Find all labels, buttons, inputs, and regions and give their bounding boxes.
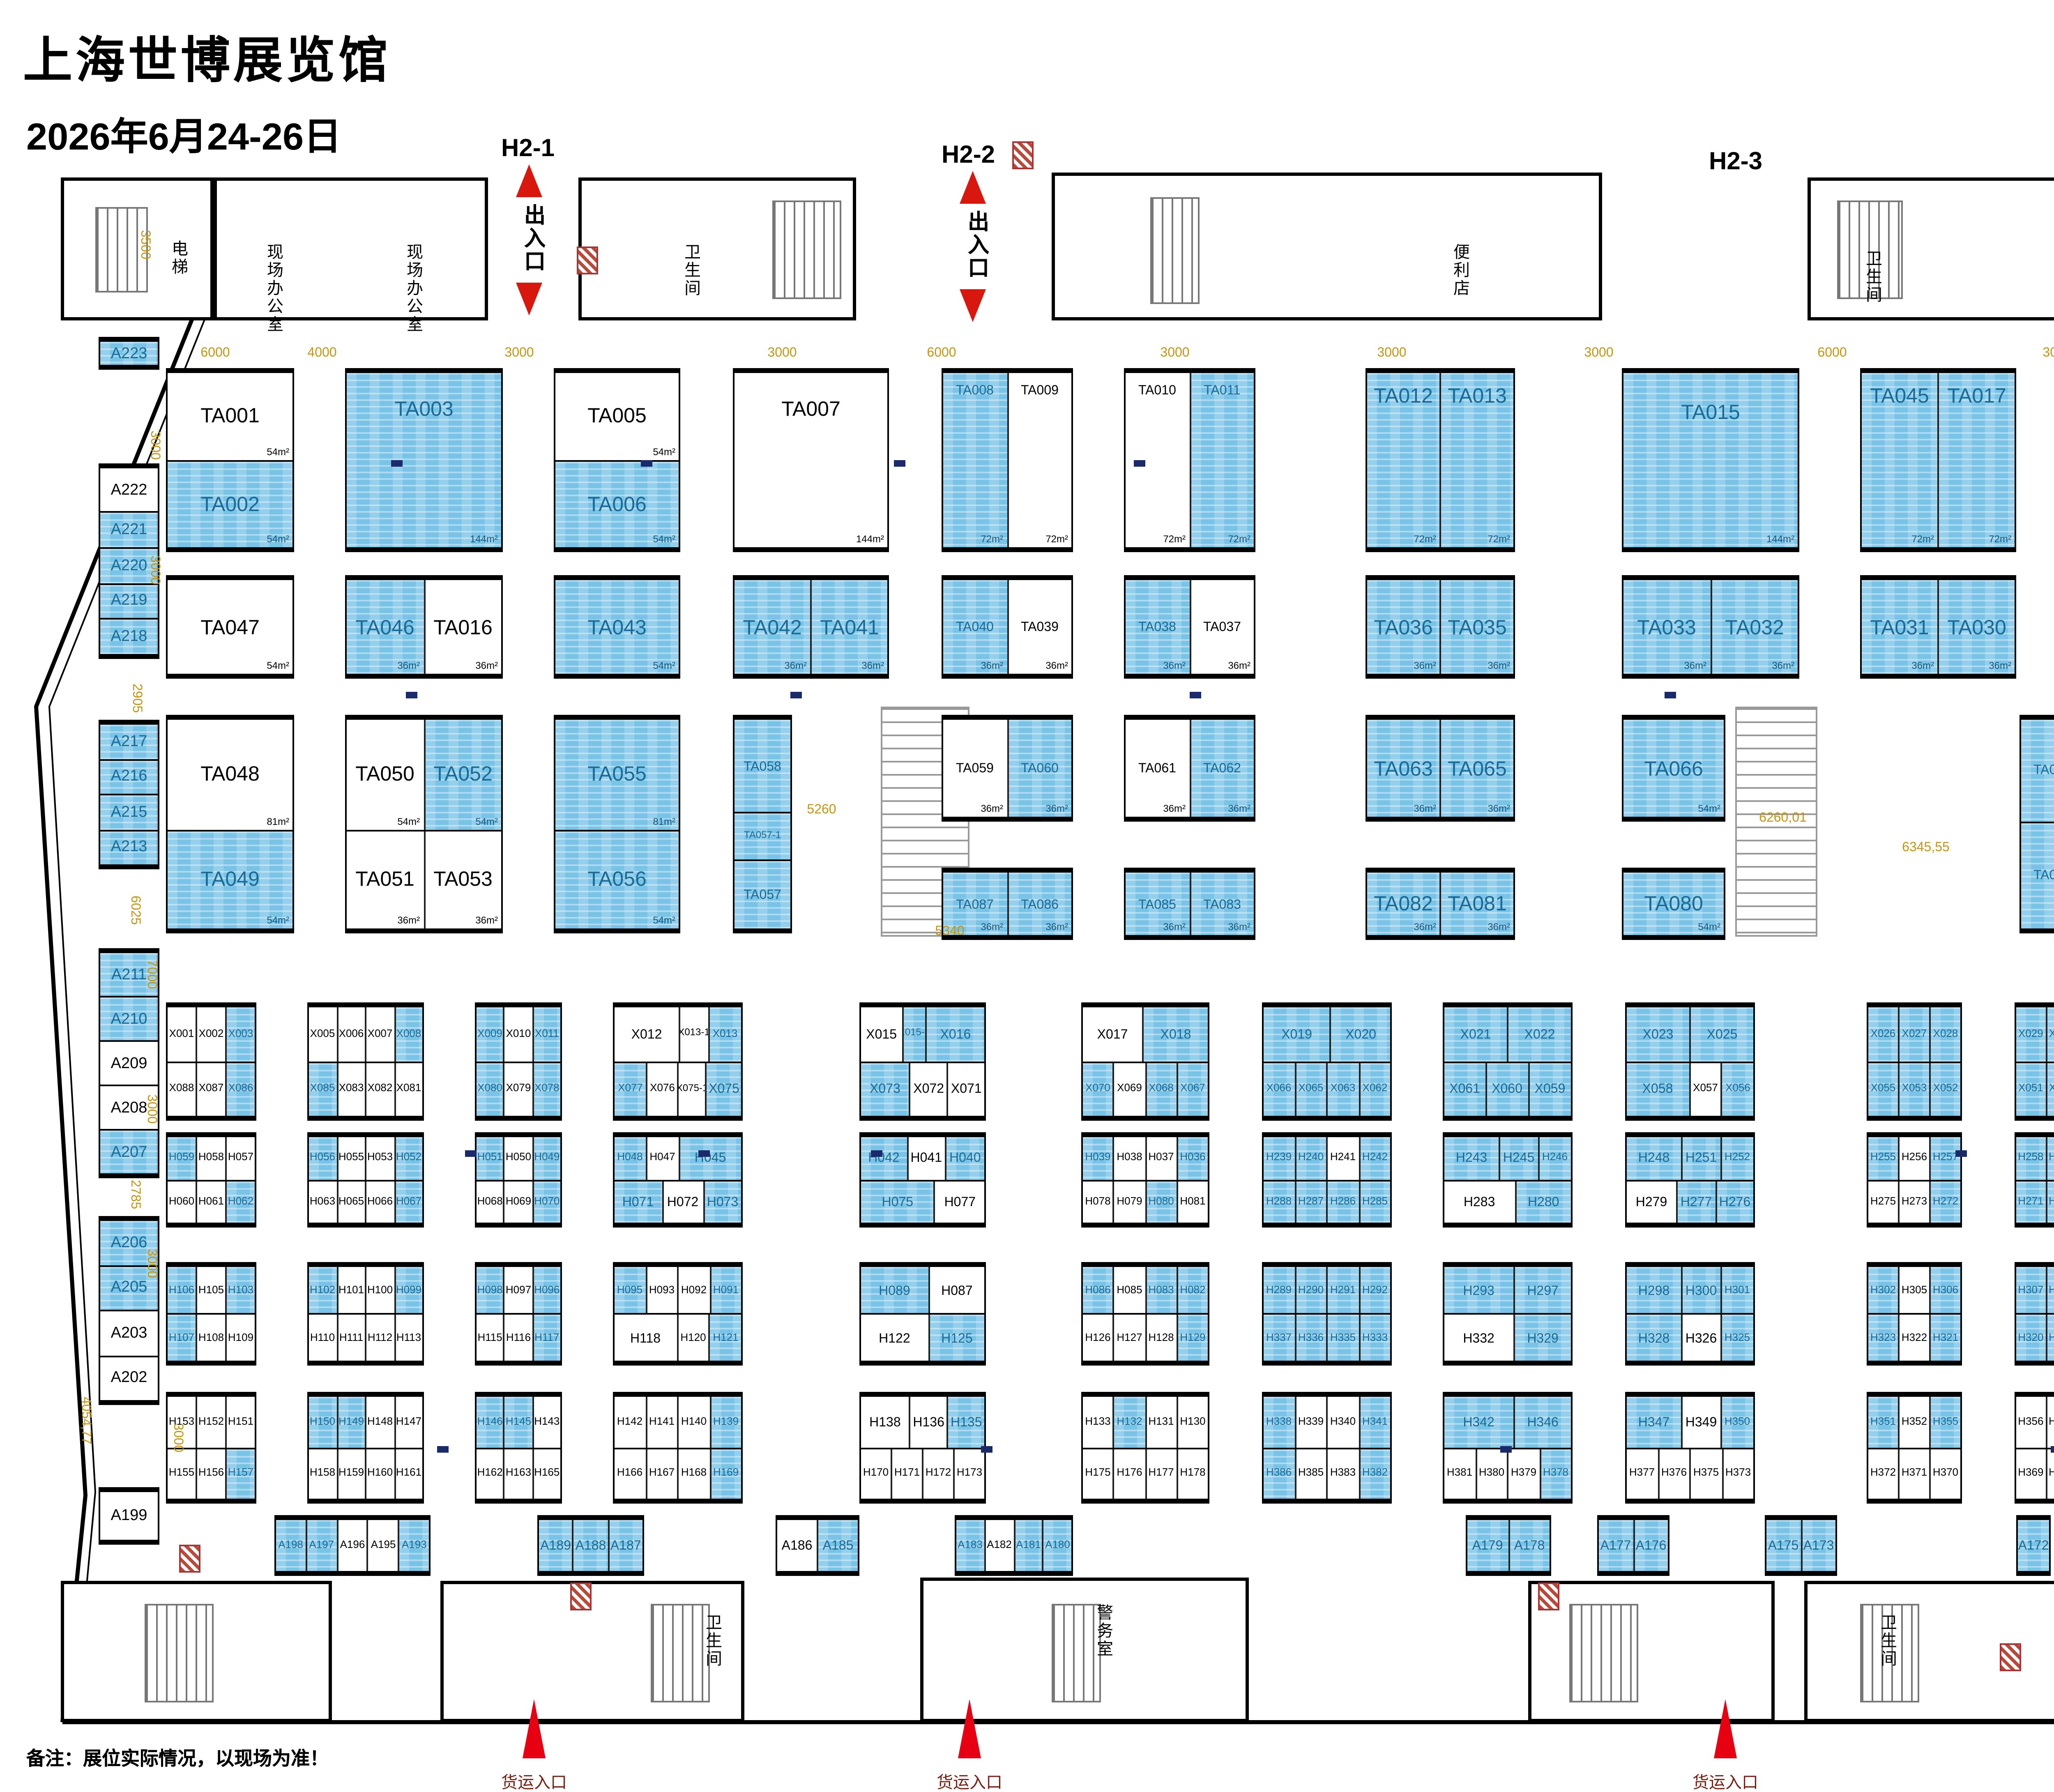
booth-TA048[interactable]: TA04881m² [168, 720, 292, 829]
booth-H166[interactable]: H166 [615, 1449, 647, 1499]
booth-X078[interactable]: X078 [534, 1062, 560, 1116]
booth-H298[interactable]: H298 [1627, 1267, 1683, 1313]
booth-H106[interactable]: H106 [168, 1267, 197, 1313]
booth-H369[interactable]: H369 [2016, 1449, 2047, 1499]
booth-X027[interactable]: X027 [1900, 1007, 1931, 1061]
booth-H341[interactable]: H341 [1360, 1397, 1390, 1447]
booth-H107[interactable]: H107 [168, 1315, 197, 1361]
booth-TA013[interactable]: TA01372m² [1441, 373, 1513, 547]
booth-H116[interactable]: H116 [505, 1315, 533, 1361]
booth-H065[interactable]: H065 [338, 1181, 366, 1223]
booth-A216[interactable]: A216 [100, 760, 158, 794]
booth-A210[interactable]: A210 [100, 997, 158, 1040]
booth-H150[interactable]: H150 [309, 1397, 338, 1447]
booth-H255[interactable]: H255 [1868, 1137, 1900, 1179]
booth-H103[interactable]: H103 [227, 1267, 255, 1313]
booth-H059[interactable]: H059 [168, 1137, 197, 1179]
booth-TA001[interactable]: TA00154m² [168, 373, 292, 459]
booth-H071[interactable]: H071 [615, 1181, 663, 1223]
booth-TA062[interactable]: TA06236m² [1190, 720, 1254, 817]
booth-X077[interactable]: X077 [615, 1062, 648, 1116]
booth-H332[interactable]: H332 [1444, 1315, 1515, 1361]
booth-A175[interactable]: A175 [1766, 1520, 1802, 1571]
booth-TA086[interactable]: TA08636m² [1008, 873, 1071, 935]
booth-TA056[interactable]: TA05654m² [555, 831, 679, 928]
booth-H279[interactable]: H279 [1627, 1181, 1678, 1223]
booth-X067[interactable]: X067 [1178, 1062, 1208, 1116]
booth-X057[interactable]: X057 [1690, 1062, 1722, 1116]
booth-TA015[interactable]: TA015144m² [1623, 373, 1798, 547]
booth-X020[interactable]: X020 [1331, 1007, 1390, 1061]
booth-H055[interactable]: H055 [338, 1137, 366, 1179]
booth-H246[interactable]: H246 [1539, 1137, 1571, 1179]
booth-H155[interactable]: H155 [168, 1449, 197, 1499]
booth-X081[interactable]: X081 [395, 1062, 422, 1116]
booth-H135[interactable]: H135 [948, 1397, 984, 1447]
booth-H160[interactable]: H160 [366, 1449, 395, 1499]
booth-X053[interactable]: X053 [1900, 1062, 1931, 1116]
booth-TA057-1[interactable]: TA057-1 [735, 814, 790, 859]
booth-H142[interactable]: H142 [615, 1397, 647, 1447]
booth-X082[interactable]: X082 [366, 1062, 395, 1116]
booth-H148[interactable]: H148 [366, 1397, 395, 1447]
booth-H307[interactable]: H307 [2016, 1267, 2047, 1313]
booth-TA011[interactable]: TA01172m² [1190, 373, 1254, 547]
booth-H239[interactable]: H239 [1264, 1137, 1296, 1179]
booth-A217[interactable]: A217 [100, 725, 158, 758]
booth-H241[interactable]: H241 [1328, 1137, 1360, 1179]
booth-H086[interactable]: H086 [1083, 1267, 1115, 1313]
booth-A222[interactable]: A222 [100, 468, 158, 511]
booth-X007[interactable]: X007 [366, 1007, 395, 1061]
booth-H378[interactable]: H378 [1540, 1449, 1571, 1499]
booth-A198[interactable]: A198 [276, 1520, 307, 1571]
booth-TA059[interactable]: TA05936m² [943, 720, 1008, 817]
booth-H041[interactable]: H041 [908, 1137, 946, 1179]
booth-H101[interactable]: H101 [338, 1267, 366, 1313]
booth-A196[interactable]: A196 [338, 1520, 368, 1571]
booth-H130[interactable]: H130 [1178, 1397, 1208, 1447]
booth-A215[interactable]: A215 [100, 795, 158, 829]
booth-H256[interactable]: H256 [1900, 1137, 1931, 1179]
booth-H305[interactable]: H305 [1900, 1267, 1931, 1313]
booth-H136[interactable]: H136 [911, 1397, 949, 1447]
booth-H125[interactable]: H125 [930, 1315, 984, 1361]
booth-TA045[interactable]: TA04572m² [1862, 373, 1939, 547]
booth-H301[interactable]: H301 [1721, 1267, 1753, 1313]
booth-X076[interactable]: X076 [648, 1062, 679, 1116]
booth-A177[interactable]: A177 [1599, 1520, 1634, 1571]
booth-H133[interactable]: H133 [1083, 1397, 1115, 1447]
booth-TA033[interactable]: TA03336m² [1623, 580, 1711, 674]
booth-TA017[interactable]: TA01772m² [1939, 373, 2015, 547]
booth-H350[interactable]: H350 [1721, 1397, 1753, 1447]
booth-A223[interactable]: A223 [100, 342, 158, 365]
booth-X015-1[interactable]: X015-1 [903, 1007, 927, 1061]
booth-X061[interactable]: X061 [1444, 1062, 1487, 1116]
booth-H121[interactable]: H121 [710, 1315, 741, 1361]
booth-H320[interactable]: H320 [2016, 1315, 2047, 1361]
booth-H132[interactable]: H132 [1115, 1397, 1146, 1447]
booth-H159[interactable]: H159 [338, 1449, 366, 1499]
booth-X012[interactable]: X012 [615, 1007, 680, 1061]
booth-H049[interactable]: H049 [534, 1137, 560, 1179]
booth-X011[interactable]: X011 [534, 1007, 560, 1061]
booth-TA003[interactable]: TA003144m² [347, 373, 501, 547]
booth-X017[interactable]: X017 [1083, 1007, 1144, 1061]
booth-H293[interactable]: H293 [1444, 1267, 1515, 1313]
booth-TA085[interactable]: TA08536m² [1126, 873, 1190, 935]
booth-A188[interactable]: A188 [574, 1520, 609, 1571]
booth-H151[interactable]: H151 [227, 1397, 255, 1447]
booth-H342[interactable]: H342 [1444, 1397, 1515, 1447]
booth-H037[interactable]: H037 [1146, 1137, 1178, 1179]
booth-H108[interactable]: H108 [197, 1315, 227, 1361]
booth-A176[interactable]: A176 [1634, 1520, 1668, 1571]
booth-TA035[interactable]: TA03536m² [1441, 580, 1513, 674]
booth-TA031[interactable]: TA03136m² [1862, 580, 1939, 674]
booth-TA082[interactable]: TA08236m² [1367, 873, 1441, 935]
booth-H173[interactable]: H173 [955, 1449, 984, 1499]
booth-TA049[interactable]: TA04954m² [168, 831, 292, 928]
booth-H163[interactable]: H163 [505, 1449, 533, 1499]
booth-H061[interactable]: H061 [197, 1181, 227, 1223]
booth-H300[interactable]: H300 [1683, 1267, 1721, 1313]
booth-X069[interactable]: X069 [1115, 1062, 1146, 1116]
booth-X013[interactable]: X013 [709, 1007, 741, 1061]
booth-H372[interactable]: H372 [1868, 1449, 1900, 1499]
booth-H288[interactable]: H288 [1264, 1181, 1296, 1223]
booth-H099[interactable]: H099 [395, 1267, 422, 1313]
booth-H297[interactable]: H297 [1515, 1267, 1571, 1313]
booth-TA006[interactable]: TA00654m² [555, 461, 679, 547]
booth-A187[interactable]: A187 [609, 1520, 642, 1571]
booth-H077[interactable]: H077 [936, 1181, 984, 1223]
booth-H177[interactable]: H177 [1146, 1449, 1178, 1499]
booth-H356[interactable]: H356 [2016, 1397, 2047, 1447]
booth-H292[interactable]: H292 [1360, 1267, 1390, 1313]
booth-H383[interactable]: H383 [1328, 1449, 1360, 1499]
booth-A179[interactable]: A179 [1467, 1520, 1509, 1571]
booth-X005[interactable]: X005 [309, 1007, 338, 1061]
booth-H149[interactable]: H149 [338, 1397, 366, 1447]
booth-X050[interactable]: X050 [2047, 1062, 2054, 1116]
booth-TA040[interactable]: TA04036m² [943, 580, 1008, 674]
booth-A173[interactable]: A173 [1802, 1520, 1835, 1571]
booth-H381[interactable]: H381 [1444, 1449, 1476, 1499]
booth-H368[interactable]: H368 [2047, 1449, 2054, 1499]
booth-H351[interactable]: H351 [1868, 1397, 1900, 1447]
booth-H171[interactable]: H171 [892, 1449, 923, 1499]
booth-H162[interactable]: H162 [477, 1449, 505, 1499]
booth-A189[interactable]: A189 [539, 1520, 574, 1571]
booth-TA047[interactable]: TA04754m² [168, 580, 292, 674]
booth-H340[interactable]: H340 [1328, 1397, 1360, 1447]
booth-TA083[interactable]: TA08336m² [1190, 873, 1254, 935]
booth-TA063[interactable]: TA06336m² [1367, 720, 1441, 817]
booth-H128[interactable]: H128 [1146, 1315, 1178, 1361]
booth-H157[interactable]: H157 [227, 1449, 255, 1499]
booth-TA037[interactable]: TA03736m² [1190, 580, 1254, 674]
booth-H326[interactable]: H326 [1683, 1315, 1721, 1361]
booth-H271[interactable]: H271 [2016, 1181, 2047, 1223]
booth-A213[interactable]: A213 [100, 831, 158, 864]
booth-TA002[interactable]: TA00254m² [168, 461, 292, 547]
booth-H175[interactable]: H175 [1083, 1449, 1115, 1499]
booth-X013-1[interactable]: X013-1 [680, 1007, 709, 1061]
booth-TA058[interactable]: TA058 [735, 720, 790, 812]
booth-X072[interactable]: X072 [911, 1062, 949, 1116]
booth-X058[interactable]: X058 [1627, 1062, 1690, 1116]
booth-H040[interactable]: H040 [946, 1137, 984, 1179]
booth-H089[interactable]: H089 [861, 1267, 930, 1313]
booth-H339[interactable]: H339 [1296, 1397, 1328, 1447]
booth-H068[interactable]: H068 [477, 1181, 505, 1223]
booth-H319[interactable]: H319 [2047, 1315, 2054, 1361]
booth-H036[interactable]: H036 [1178, 1137, 1208, 1179]
booth-H110[interactable]: H110 [309, 1315, 338, 1361]
booth-H337[interactable]: H337 [1264, 1315, 1296, 1361]
booth-H333[interactable]: H333 [1360, 1315, 1390, 1361]
booth-X023[interactable]: X023 [1627, 1007, 1691, 1061]
booth-H308[interactable]: H308 [2047, 1267, 2054, 1313]
booth-H070[interactable]: H070 [534, 1181, 560, 1223]
booth-H087[interactable]: H087 [930, 1267, 984, 1313]
booth-H178[interactable]: H178 [1178, 1449, 1208, 1499]
booth-H245[interactable]: H245 [1500, 1137, 1539, 1179]
booth-TA041[interactable]: TA04136m² [812, 580, 887, 674]
booth-H158[interactable]: H158 [309, 1449, 338, 1499]
booth-H097[interactable]: H097 [505, 1267, 533, 1313]
booth-X028[interactable]: X028 [1931, 1007, 1960, 1061]
booth-A199[interactable]: A199 [100, 1492, 158, 1540]
booth-A185[interactable]: A185 [818, 1520, 858, 1571]
booth-A183[interactable]: A183 [956, 1520, 986, 1571]
booth-H063[interactable]: H063 [309, 1181, 338, 1223]
booth-H141[interactable]: H141 [647, 1397, 679, 1447]
booth-TA068[interactable]: TA06836m² [2021, 720, 2054, 821]
booth-A209[interactable]: A209 [100, 1042, 158, 1085]
booth-H145[interactable]: H145 [505, 1397, 533, 1447]
booth-X079[interactable]: X079 [505, 1062, 533, 1116]
booth-A195[interactable]: A195 [369, 1520, 400, 1571]
booth-H138[interactable]: H138 [861, 1397, 911, 1447]
booth-H129[interactable]: H129 [1178, 1315, 1208, 1361]
booth-TA055[interactable]: TA05581m² [555, 720, 679, 829]
booth-H338[interactable]: H338 [1264, 1397, 1296, 1447]
booth-H285[interactable]: H285 [1360, 1181, 1390, 1223]
booth-TA046[interactable]: TA04636m² [347, 580, 425, 674]
booth-A219[interactable]: A219 [100, 584, 158, 618]
booth-H042[interactable]: H042 [861, 1137, 908, 1179]
booth-H075[interactable]: H075 [861, 1181, 936, 1223]
booth-X088[interactable]: X088 [168, 1062, 197, 1116]
booth-X083[interactable]: X083 [338, 1062, 366, 1116]
booth-H371[interactable]: H371 [1900, 1449, 1931, 1499]
booth-H079[interactable]: H079 [1115, 1181, 1146, 1223]
booth-H290[interactable]: H290 [1296, 1267, 1328, 1313]
booth-X071[interactable]: X071 [948, 1062, 984, 1116]
booth-TA009[interactable]: TA00972m² [1008, 373, 1071, 547]
booth-H156[interactable]: H156 [197, 1449, 227, 1499]
booth-H252[interactable]: H252 [1721, 1137, 1753, 1179]
booth-H078[interactable]: H078 [1083, 1181, 1115, 1223]
booth-H287[interactable]: H287 [1296, 1181, 1328, 1223]
booth-H131[interactable]: H131 [1146, 1397, 1178, 1447]
booth-H066[interactable]: H066 [366, 1181, 395, 1223]
booth-X006[interactable]: X006 [338, 1007, 366, 1061]
booth-H147[interactable]: H147 [395, 1397, 422, 1447]
booth-X021[interactable]: X021 [1444, 1007, 1508, 1061]
booth-H170[interactable]: H170 [861, 1449, 892, 1499]
booth-A197[interactable]: A197 [307, 1520, 338, 1571]
booth-TA081[interactable]: TA08136m² [1441, 873, 1513, 935]
booth-X055[interactable]: X055 [1868, 1062, 1900, 1116]
booth-H335[interactable]: H335 [1328, 1315, 1360, 1361]
booth-H127[interactable]: H127 [1115, 1315, 1146, 1361]
booth-H347[interactable]: H347 [1627, 1397, 1683, 1447]
booth-H039[interactable]: H039 [1083, 1137, 1115, 1179]
booth-X086[interactable]: X086 [227, 1062, 255, 1116]
booth-H349[interactable]: H349 [1683, 1397, 1721, 1447]
booth-H120[interactable]: H120 [678, 1315, 710, 1361]
booth-H140[interactable]: H140 [679, 1397, 711, 1447]
booth-H377[interactable]: H377 [1627, 1449, 1659, 1499]
booth-H336[interactable]: H336 [1296, 1315, 1328, 1361]
booth-H322[interactable]: H322 [1900, 1315, 1931, 1361]
booth-H323[interactable]: H323 [1868, 1315, 1900, 1361]
booth-H053[interactable]: H053 [366, 1137, 395, 1179]
booth-A172[interactable]: A172 [2018, 1520, 2049, 1571]
booth-H382[interactable]: H382 [1360, 1449, 1390, 1499]
booth-X025[interactable]: X025 [1691, 1007, 1753, 1061]
booth-H093[interactable]: H093 [647, 1267, 679, 1313]
booth-TA065[interactable]: TA06536m² [1441, 720, 1513, 817]
booth-TA053[interactable]: TA05336m² [425, 831, 501, 928]
booth-H273[interactable]: H273 [1900, 1181, 1931, 1223]
booth-H355[interactable]: H355 [1931, 1397, 1960, 1447]
booth-H083[interactable]: H083 [1146, 1267, 1178, 1313]
booth-H259[interactable]: H259 [2047, 1137, 2054, 1179]
booth-H257[interactable]: H257 [1931, 1137, 1960, 1179]
booth-H375[interactable]: H375 [1691, 1449, 1723, 1499]
booth-H152[interactable]: H152 [197, 1397, 227, 1447]
booth-H161[interactable]: H161 [395, 1449, 422, 1499]
booth-H240[interactable]: H240 [1296, 1137, 1328, 1179]
booth-H251[interactable]: H251 [1683, 1137, 1721, 1179]
booth-X073[interactable]: X073 [861, 1062, 911, 1116]
booth-X010[interactable]: X010 [505, 1007, 533, 1061]
booth-H172[interactable]: H172 [923, 1449, 955, 1499]
booth-H352[interactable]: H352 [1900, 1397, 1931, 1447]
booth-H328[interactable]: H328 [1627, 1315, 1683, 1361]
booth-TA051[interactable]: TA05136m² [347, 831, 425, 928]
booth-H115[interactable]: H115 [477, 1315, 505, 1361]
booth-H069[interactable]: H069 [505, 1181, 533, 1223]
booth-H275[interactable]: H275 [1868, 1181, 1900, 1223]
booth-H329[interactable]: H329 [1515, 1315, 1571, 1361]
booth-A181[interactable]: A181 [1015, 1520, 1044, 1571]
booth-X075[interactable]: X075 [707, 1062, 741, 1116]
booth-H385[interactable]: H385 [1296, 1449, 1328, 1499]
booth-H038[interactable]: H038 [1115, 1137, 1146, 1179]
booth-H092[interactable]: H092 [679, 1267, 711, 1313]
booth-X002[interactable]: X002 [197, 1007, 227, 1061]
booth-TA012[interactable]: TA01272m² [1367, 373, 1441, 547]
booth-X052[interactable]: X052 [1931, 1062, 1960, 1116]
booth-X066[interactable]: X066 [1264, 1062, 1296, 1116]
booth-H113[interactable]: H113 [395, 1315, 422, 1361]
booth-A178[interactable]: A178 [1509, 1520, 1550, 1571]
booth-H095[interactable]: H095 [615, 1267, 647, 1313]
booth-H280[interactable]: H280 [1516, 1181, 1571, 1223]
booth-X001[interactable]: X001 [168, 1007, 197, 1061]
booth-H346[interactable]: H346 [1515, 1397, 1571, 1447]
booth-X029[interactable]: X029 [2016, 1007, 2047, 1061]
booth-H165[interactable]: H165 [534, 1449, 560, 1499]
booth-H168[interactable]: H168 [679, 1449, 711, 1499]
booth-H272[interactable]: H272 [1931, 1181, 1960, 1223]
booth-A180[interactable]: A180 [1044, 1520, 1071, 1571]
booth-X063[interactable]: X063 [1328, 1062, 1360, 1116]
booth-X062[interactable]: X062 [1360, 1062, 1390, 1116]
booth-H276[interactable]: H276 [1716, 1181, 1753, 1223]
booth-H325[interactable]: H325 [1721, 1315, 1753, 1361]
booth-TA039[interactable]: TA03936m² [1008, 580, 1071, 674]
booth-TA008[interactable]: TA00872m² [943, 373, 1008, 547]
booth-X068[interactable]: X068 [1146, 1062, 1178, 1116]
booth-H072[interactable]: H072 [663, 1181, 704, 1223]
booth-H386[interactable]: H386 [1264, 1449, 1296, 1499]
booth-H176[interactable]: H176 [1115, 1449, 1146, 1499]
booth-TA043[interactable]: TA04354m² [555, 580, 679, 674]
booth-H258[interactable]: H258 [2016, 1137, 2047, 1179]
booth-A202[interactable]: A202 [100, 1357, 158, 1400]
booth-H321[interactable]: H321 [1931, 1315, 1960, 1361]
booth-X051[interactable]: X051 [2016, 1062, 2047, 1116]
booth-H248[interactable]: H248 [1627, 1137, 1683, 1179]
booth-H100[interactable]: H100 [366, 1267, 395, 1313]
booth-H057[interactable]: H057 [227, 1137, 255, 1179]
booth-H047[interactable]: H047 [647, 1137, 679, 1179]
booth-H126[interactable]: H126 [1083, 1315, 1115, 1361]
booth-H111[interactable]: H111 [338, 1315, 366, 1361]
booth-H286[interactable]: H286 [1328, 1181, 1360, 1223]
booth-H112[interactable]: H112 [366, 1315, 395, 1361]
booth-H283[interactable]: H283 [1444, 1181, 1516, 1223]
booth-H139[interactable]: H139 [711, 1397, 741, 1447]
booth-X009[interactable]: X009 [477, 1007, 505, 1061]
booth-A203[interactable]: A203 [100, 1311, 158, 1355]
booth-X085[interactable]: X085 [309, 1062, 338, 1116]
booth-H380[interactable]: H380 [1476, 1449, 1508, 1499]
booth-H052[interactable]: H052 [395, 1137, 422, 1179]
booth-X018[interactable]: X018 [1144, 1007, 1208, 1061]
booth-H102[interactable]: H102 [309, 1267, 338, 1313]
booth-H080[interactable]: H080 [1146, 1181, 1178, 1223]
booth-H082[interactable]: H082 [1178, 1267, 1208, 1313]
booth-TA050[interactable]: TA05054m² [347, 720, 425, 829]
booth-TA030[interactable]: TA03036m² [1939, 580, 2015, 674]
booth-TA032[interactable]: TA03236m² [1711, 580, 1798, 674]
booth-H243[interactable]: H243 [1444, 1137, 1500, 1179]
booth-TA042[interactable]: TA04236m² [735, 580, 812, 674]
booth-H289[interactable]: H289 [1264, 1267, 1296, 1313]
booth-TA052[interactable]: TA05254m² [425, 720, 501, 829]
booth-H118[interactable]: H118 [615, 1315, 678, 1361]
booth-X059[interactable]: X059 [1529, 1062, 1571, 1116]
booth-X075-1[interactable]: X075-1 [679, 1062, 707, 1116]
